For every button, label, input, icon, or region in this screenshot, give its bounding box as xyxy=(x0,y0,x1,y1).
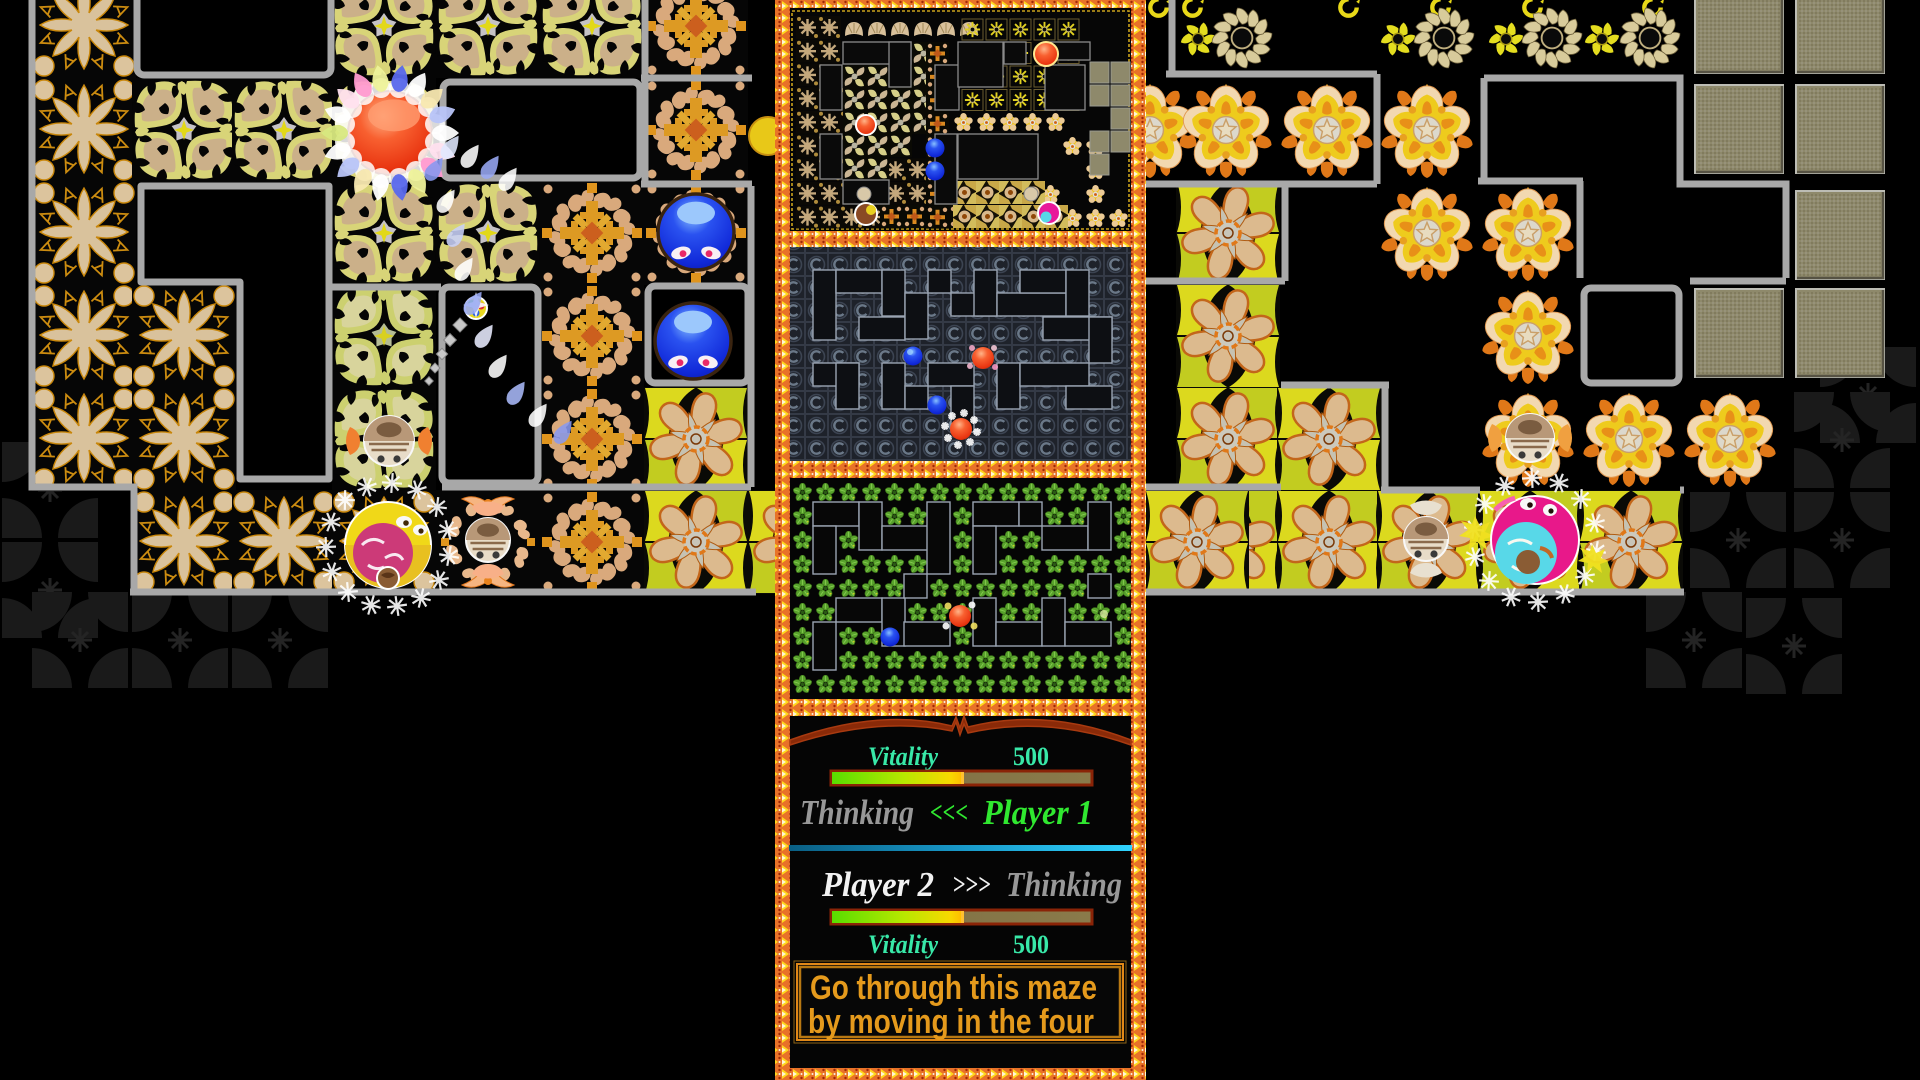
svg-text:Go through this maze: Go through this maze xyxy=(810,969,1097,1007)
svg-text:500: 500 xyxy=(1013,742,1049,771)
svg-text:by moving in the four: by moving in the four xyxy=(808,1003,1094,1041)
svg-text:Vitality: Vitality xyxy=(868,742,938,771)
svg-text:Thinking: Thinking xyxy=(1006,865,1122,904)
svg-text:>>>: >>> xyxy=(953,868,991,901)
svg-text:Player 1: Player 1 xyxy=(982,793,1093,832)
svg-text:Vitality: Vitality xyxy=(868,930,938,959)
svg-text:Thinking: Thinking xyxy=(800,793,914,832)
svg-text:500: 500 xyxy=(1013,930,1049,959)
svg-text:Player 2: Player 2 xyxy=(821,865,934,904)
svg-text:<<<: <<< xyxy=(930,796,968,829)
